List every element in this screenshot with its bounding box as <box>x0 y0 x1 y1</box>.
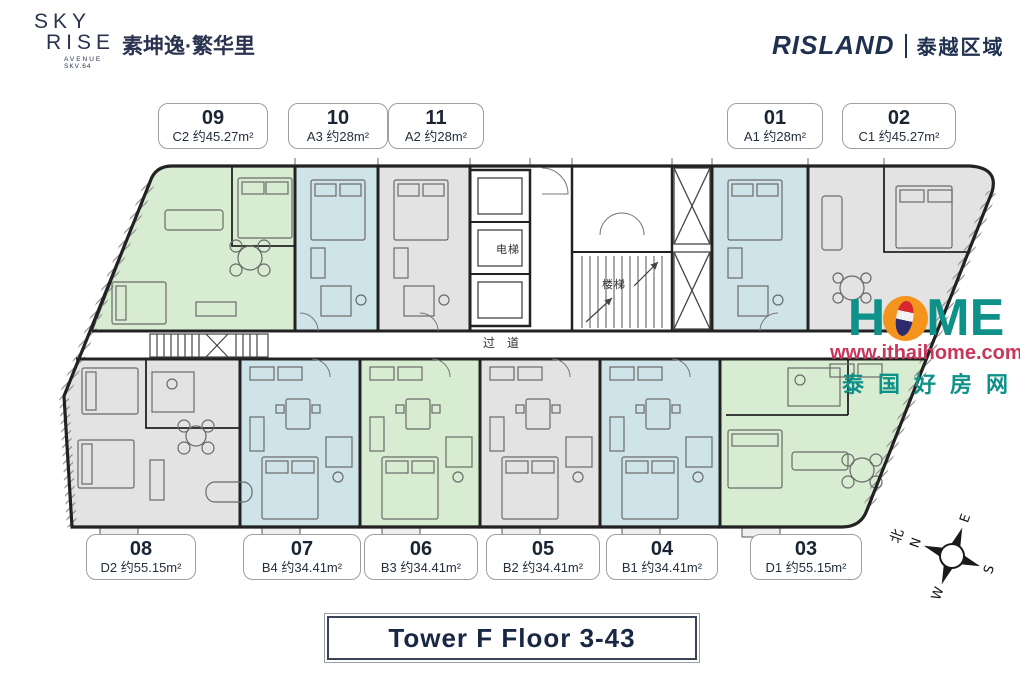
thailand-flag-shape <box>893 299 917 337</box>
unit-type-area: D2 约55.15m² <box>101 561 182 575</box>
compass-north-cn: 北 <box>888 527 908 546</box>
unit-type-area: A2 约28m² <box>405 130 467 144</box>
unit-type-area: A1 约28m² <box>744 130 806 144</box>
watermark-slogan: 泰国好房网 <box>842 367 1020 399</box>
unit-badge-03: 03 D1 约55.15m² <box>750 534 862 580</box>
floor-title-banner: Tower F Floor 3-43 <box>327 616 697 660</box>
unit-number: 08 <box>130 539 152 560</box>
unit-badge-09: 09 C2 约45.27m² <box>158 103 268 149</box>
ithaihome-watermark: H ME www.ithaihome.com 泰国好房网 <box>830 292 1020 399</box>
compass-n: N <box>908 536 925 550</box>
compass-s: S <box>981 563 998 576</box>
unit-07-area <box>240 359 360 527</box>
unit-05-area <box>480 359 600 527</box>
unit-number: 09 <box>202 108 224 129</box>
unit-badge-05: 05 B2 约34.41m² <box>486 534 600 580</box>
unit-number: 01 <box>764 108 786 129</box>
unit-badge-08: 08 D2 约55.15m² <box>86 534 196 580</box>
unit-11-area <box>378 166 470 331</box>
unit-number: 11 <box>425 108 446 129</box>
unit-number: 03 <box>795 539 817 560</box>
unit-type-area: C2 约45.27m² <box>173 130 254 144</box>
unit-type-area: B1 约34.41m² <box>622 561 702 575</box>
compass-w: W <box>929 585 948 602</box>
west-stair <box>150 334 268 357</box>
unit-number: 04 <box>651 539 673 560</box>
unit-type-area: A3 约28m² <box>307 130 369 144</box>
stairs-label: 楼梯 <box>592 276 636 292</box>
unit-number: 10 <box>327 108 349 129</box>
compass-e: E <box>957 512 974 525</box>
unit-badge-07: 07 B4 约34.41m² <box>243 534 361 580</box>
unit-04-area <box>600 359 720 527</box>
watermark-letter-h: H <box>848 292 886 344</box>
unit-type-area: B4 约34.41m² <box>262 561 342 575</box>
unit-badge-01: 01 A1 约28m² <box>727 103 823 149</box>
watermark-letters-me: ME <box>926 292 1004 344</box>
watermark-url: www.ithaihome.com <box>830 342 1020 365</box>
unit-type-area: B3 约34.41m² <box>381 561 461 575</box>
unit-badge-06: 06 B3 约34.41m² <box>364 534 478 580</box>
unit-number: 02 <box>888 108 910 129</box>
unit-badge-02: 02 C1 约45.27m² <box>842 103 956 149</box>
unit-number: 06 <box>410 539 432 560</box>
floor-title: Tower F Floor 3-43 <box>388 623 635 654</box>
unit-type-area: B2 约34.41m² <box>503 561 583 575</box>
unit-number: 07 <box>291 539 313 560</box>
unit-badge-04: 04 B1 约34.41m² <box>606 534 718 580</box>
watermark-brand: H ME <box>830 292 1020 344</box>
unit-type-area: C1 约45.27m² <box>859 130 940 144</box>
unit-number: 05 <box>532 539 554 560</box>
unit-badge-11: 11 A2 约28m² <box>388 103 484 149</box>
thailand-map-icon <box>883 296 928 341</box>
elevator-label: 电梯 <box>486 241 530 257</box>
compass: N E S W 北 <box>874 492 1012 616</box>
unit-06-area <box>360 359 480 527</box>
corridor-label: 过道 <box>462 334 552 351</box>
unit-badge-10: 10 A3 约28m² <box>288 103 388 149</box>
unit-01-area <box>712 166 808 331</box>
unit-type-area: D1 约55.15m² <box>766 561 847 575</box>
